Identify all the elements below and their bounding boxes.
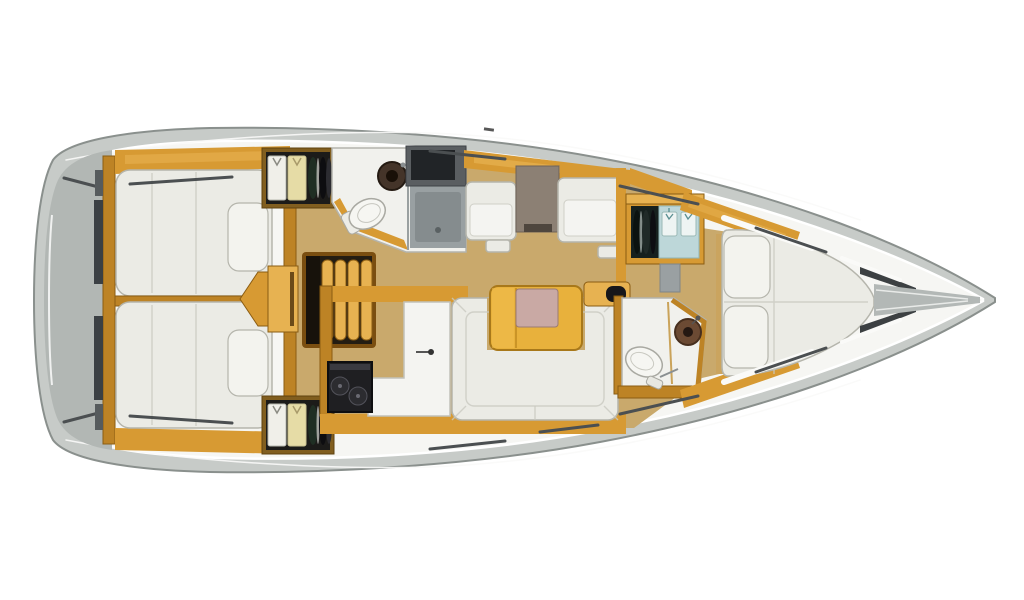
- settee-cushion: [564, 200, 616, 236]
- chart-table: [516, 166, 559, 232]
- shirt-yellow-icon: [288, 404, 306, 446]
- shower-drain: [435, 227, 441, 233]
- pillow: [724, 306, 768, 368]
- nav-seat-cushion: [470, 204, 512, 236]
- steps-shadow: [306, 256, 320, 344]
- pillow: [228, 330, 268, 396]
- hanger-shirt-icon: [662, 212, 677, 236]
- stove-controls: [330, 364, 370, 370]
- hanging-coat-icon: [326, 158, 332, 198]
- mast-pillar: [660, 264, 680, 292]
- hanging-coat-icon: [650, 210, 656, 254]
- shower-floor: [415, 192, 461, 242]
- washbasin-drain: [683, 327, 693, 337]
- saloon: [452, 282, 630, 420]
- footrest: [486, 240, 510, 252]
- faucet: [401, 163, 406, 168]
- burner-center: [338, 384, 342, 388]
- hanger-shirt-icon: [681, 212, 696, 236]
- shirt-white-icon: [268, 404, 286, 446]
- aft-berth-starboard: [116, 302, 272, 428]
- pillow: [228, 203, 268, 271]
- aft-panel-bottom: [94, 316, 103, 400]
- hanging-coat-icon: [319, 157, 327, 199]
- hanging-coat-icon: [642, 210, 650, 254]
- galley-return-counter: [320, 286, 468, 302]
- table-leaf: [492, 288, 514, 348]
- aft-berth-port: [116, 170, 272, 296]
- aft-panel-small-top: [95, 170, 103, 196]
- washbasin-drain: [386, 170, 398, 182]
- engine-box-slit: [290, 272, 294, 326]
- table-inset: [516, 289, 558, 327]
- boat-floor-plan-canvas: [0, 0, 1024, 600]
- hanging-locker-port: [262, 148, 334, 208]
- shirt-yellow-icon: [288, 156, 306, 200]
- storage-cabinet-interior: [411, 150, 455, 180]
- deck-fitting: [484, 127, 494, 131]
- head-starboard: [614, 296, 706, 398]
- shirt-white-icon: [268, 156, 286, 200]
- sailboat-floor-plan: [0, 0, 1024, 600]
- faucet-base: [428, 349, 434, 355]
- pillow: [724, 236, 770, 298]
- faucet-head: [696, 316, 701, 321]
- aft-panel-top: [94, 200, 103, 284]
- aft-panel-small-bottom: [95, 404, 103, 430]
- aft-bulkhead: [103, 156, 115, 444]
- burner-center: [356, 394, 360, 398]
- chart-table-edge: [524, 224, 552, 232]
